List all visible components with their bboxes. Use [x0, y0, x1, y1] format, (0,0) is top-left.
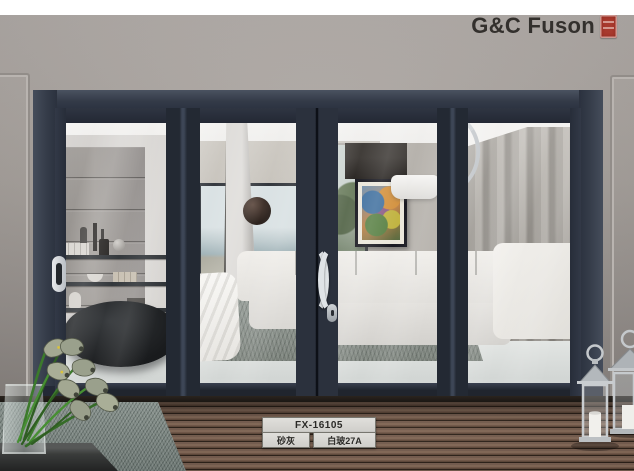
brand-logo-text: G&C Fuson: [471, 13, 595, 39]
glass-type-label: 白玻27A: [313, 432, 376, 448]
product-showcase: G&C Fuson: [0, 0, 634, 471]
candle-lanterns: [560, 325, 634, 471]
flush-pull-handle: [52, 256, 66, 292]
frame-finish-label: 砂灰: [262, 432, 310, 448]
brand-seal-icon: [600, 15, 617, 38]
calla-flowers: [42, 336, 122, 424]
calla-lily-plant: [0, 322, 140, 471]
lantern-right: [606, 331, 634, 438]
product-model-label: FX-16105: [262, 417, 376, 433]
door-frame-top: [33, 90, 603, 110]
panel3-panel4-stiles: [437, 108, 468, 396]
door-lock-cylinder: [327, 304, 337, 322]
brand-logo: G&C Fuson: [471, 13, 617, 39]
panel1-panel2-stiles: [166, 108, 200, 396]
